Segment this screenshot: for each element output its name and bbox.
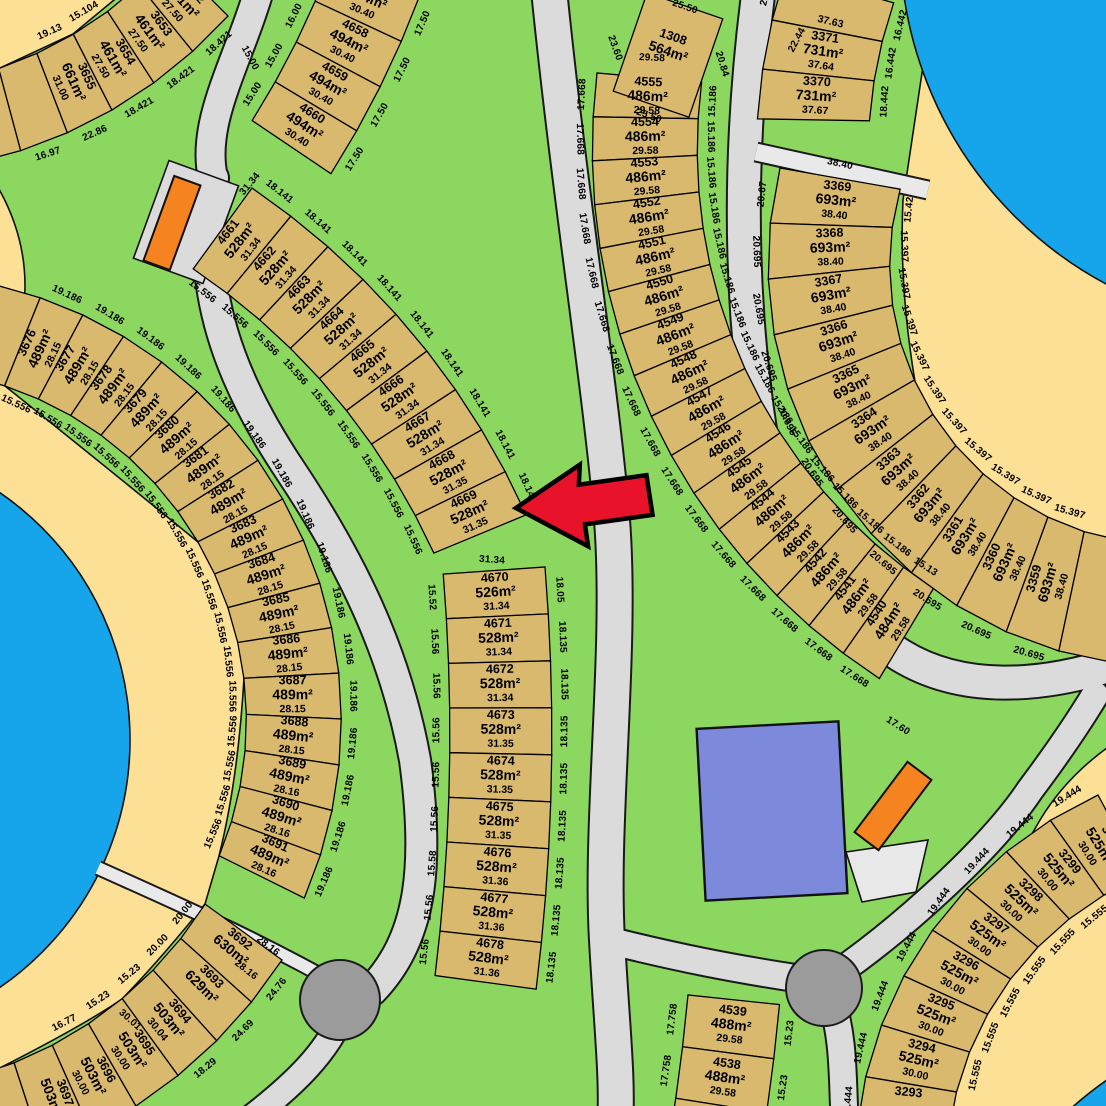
dimension-label: 18.05 — [553, 576, 566, 603]
lot-width-label: 31.34 — [486, 646, 513, 659]
roundabout-junction — [300, 960, 380, 1040]
dimension-label: 18.135 — [558, 762, 570, 794]
dimension-label: 18.135 — [558, 668, 569, 700]
lot-area-label: 731m² — [795, 86, 837, 104]
dimension-label: 15.186 — [705, 121, 717, 153]
dimension-label: 17.668 — [576, 78, 589, 111]
dimension-label: 15.56 — [428, 628, 440, 655]
plat-map-canvas[interactable]: 3652461m²27.5018.42116.1043653461m²27.50… — [0, 0, 1106, 1106]
lot-width-label: 31.35 — [485, 829, 512, 842]
lot-width-label: 31.35 — [487, 783, 514, 796]
dimension-label: 19.186 — [347, 680, 358, 712]
dimension-label: 15.58 — [426, 850, 439, 877]
dimension-label: 17.668 — [574, 123, 586, 155]
lot-width-label: 31.35 — [487, 738, 514, 750]
dimension-label: 20.695 — [750, 236, 762, 268]
lot-id-label: 3687 — [279, 673, 307, 687]
stray-dimension-label: 31.34 — [479, 554, 506, 567]
lot-area-label: 528m² — [478, 811, 520, 829]
dimension-label: 15.56 — [430, 673, 441, 699]
lot-area-label: 489m² — [272, 686, 313, 702]
dimension-label: 15.52 — [425, 584, 438, 611]
lot-area-label: 526m² — [475, 582, 517, 600]
stray-dimension-label: 29.58 — [639, 52, 666, 64]
lot-area-label: 528m² — [480, 721, 521, 737]
dimension-label: 19.444 — [841, 1086, 855, 1106]
lot-width-label: 38.40 — [817, 256, 844, 269]
plat-map: 3652461m²27.5018.42116.1043653461m²27.50… — [0, 0, 1106, 1106]
dimension-label: 15.397 — [898, 230, 910, 262]
dimension-label: 18.442 — [878, 85, 891, 118]
pool — [697, 721, 848, 900]
dimension-label: 18.135 — [556, 810, 569, 843]
lot-id-label: 3293 — [894, 1084, 923, 1101]
lot-width-label: 31.36 — [482, 874, 509, 888]
lot-width-label: 31.34 — [483, 600, 510, 614]
lot-width-label: 31.34 — [487, 692, 514, 704]
lot-area-label: 528m² — [480, 766, 521, 783]
lot-area-label: 528m² — [476, 857, 518, 876]
lot-width-label: 37.67 — [802, 104, 829, 118]
dimension-label: 18.135 — [556, 621, 568, 653]
roundabout-junction — [786, 950, 862, 1026]
lot-area-label: 528m² — [478, 628, 519, 645]
lot-area-label: 693m² — [810, 238, 851, 255]
dimension-label: 15.56 — [431, 761, 443, 788]
dimension-label: 15.186 — [707, 85, 720, 118]
dimension-label: 15.556 — [226, 680, 237, 712]
dimension-label: 15.56 — [429, 805, 441, 832]
lot-area-label: 486m² — [627, 87, 669, 105]
lot-area-label: 486m² — [625, 128, 666, 145]
dimension-label: 18.135 — [559, 715, 570, 747]
dimension-label: 15.56 — [431, 717, 442, 743]
lot-area-label: 528m² — [480, 675, 521, 692]
